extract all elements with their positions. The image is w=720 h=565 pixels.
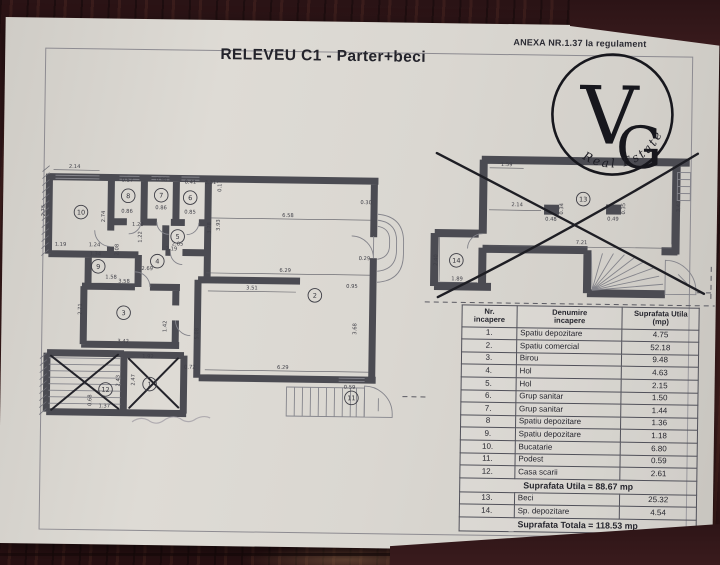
dimension-label: 6.58	[282, 213, 294, 219]
table-cell: 25.32	[620, 494, 697, 508]
table-cell: 4.	[461, 364, 516, 377]
room-number: 11	[347, 394, 355, 402]
room-number: 8	[126, 192, 130, 200]
dimension-label: 2.14	[511, 202, 523, 208]
dimension-label: 3.68	[352, 323, 358, 335]
table-cell: 2.	[462, 339, 517, 352]
rooms-table-body: 1.Spatiu depozitare4.752.Spatiu comercia…	[459, 327, 699, 535]
room-number: 6	[188, 194, 192, 202]
table-cell: 4.54	[620, 507, 697, 521]
dimension-label: 1.24	[89, 242, 101, 248]
dimension-label: 0.72	[184, 365, 196, 371]
dimension-label: 0.29	[359, 256, 371, 262]
table-cell: 12.	[460, 465, 515, 478]
dimension-label: 2.47	[131, 374, 137, 386]
table-header-cell: Suprafata Utila(mp)	[622, 307, 699, 330]
dimension-label: 0.49	[607, 216, 619, 222]
table-cell: 1.	[462, 327, 517, 340]
dimension-label: 2.75	[41, 205, 47, 217]
dimension-label: 0.57	[122, 178, 134, 184]
room-number: 2	[313, 292, 317, 300]
basement-stairs	[591, 253, 664, 291]
dimension-label: 0.86	[121, 209, 133, 215]
table-cell: 10.	[460, 440, 515, 453]
dimension-label: 1.19	[55, 242, 67, 248]
dimension-label: 3.58	[118, 279, 130, 285]
walls-parter	[46, 174, 378, 419]
table-cell: 13.	[459, 492, 514, 505]
dimension-label: 1.92	[142, 354, 154, 360]
wood-background: { "document": { "title": "RELEVEU C1 - P…	[0, 0, 720, 565]
room-number: 3	[121, 309, 125, 317]
handwritten-scribble	[132, 416, 210, 424]
table-cell: 52.18	[622, 341, 699, 355]
dimension-label: 0.68	[87, 394, 93, 406]
dimension-label: 1.42	[162, 320, 168, 332]
dimension-label: 2.71	[78, 303, 84, 315]
room-number: 7	[159, 192, 163, 200]
table-cell: 4.75	[622, 329, 699, 343]
table-cell: 8	[461, 415, 516, 428]
room-number: 14	[452, 257, 460, 265]
table-header-cell: Denumireincapere	[517, 306, 623, 329]
dimension-label: 2.14	[69, 164, 81, 170]
table-cell: 9.48	[622, 354, 699, 368]
basement-landing	[665, 260, 696, 294]
dimension-label: 2.40	[433, 254, 439, 266]
x-mark-casa-scarii	[50, 354, 119, 411]
dimension-label: 1.58	[105, 274, 117, 280]
vg-real-estate-logo: V G Real Estate	[527, 50, 701, 210]
dimension-label: 5.08	[194, 328, 200, 340]
dimension-label: 0.95	[346, 284, 358, 290]
table-cell: 11.	[460, 453, 515, 466]
dimension-label: 0.59	[344, 385, 356, 391]
room-number: 5	[176, 233, 180, 241]
dimension-label: 0.48	[545, 217, 557, 223]
dimension-label: 0.86	[155, 205, 167, 211]
dimension-label: 1.59	[501, 162, 513, 168]
dimension-label: 0.17	[217, 180, 223, 192]
table-header-cell: Nr.incapere	[462, 305, 517, 327]
table-cell: 6.80	[621, 442, 698, 456]
dimension-label: 3.42	[117, 339, 129, 345]
dimension-label: 7.21	[576, 240, 588, 246]
dimension-label: 3.51	[246, 285, 258, 291]
dimension-label: 0.85	[184, 210, 196, 216]
dimension-label: 3.78	[207, 222, 213, 234]
dimension-label: 1.20	[132, 222, 144, 228]
dimension-label: 1.22	[138, 231, 144, 243]
table-cell: 2.61	[620, 467, 697, 481]
table-cell: 1.36	[621, 417, 698, 431]
table-cell: 2.15	[621, 379, 698, 393]
dimension-label: 2.43	[116, 375, 122, 387]
table-cell: 4.63	[622, 367, 699, 381]
wood-plank-groove	[0, 553, 400, 556]
scanned-document-page: RELEVEU C1 - Parter+beci ANEXA NR.1.37 l…	[0, 17, 720, 553]
table-cell: 9.	[460, 427, 515, 440]
dimension-label: 6.29	[277, 365, 289, 371]
rooms-table: Nr.incapereDenumireincapereSuprafata Uti…	[459, 304, 700, 534]
entrance-landing	[364, 386, 392, 417]
dimension-label: 0.41	[185, 180, 197, 186]
room-number: 10	[77, 208, 85, 216]
boundary-dashes	[697, 267, 713, 301]
dimension-label: 1.34	[90, 251, 102, 257]
dimension-label: 2.08	[114, 244, 120, 256]
table-cell: 6.	[461, 390, 516, 403]
table-cell: 5.	[461, 377, 516, 390]
table-cell: 1.50	[621, 392, 698, 406]
dimension-label: 1.89	[451, 276, 463, 282]
room-number: 1	[147, 380, 151, 388]
dimension-label: 3.93	[216, 219, 222, 231]
dimension-label: 3.31	[205, 180, 217, 186]
table-cell: 0.59	[620, 455, 697, 469]
dimension-label: 0.30	[360, 200, 372, 206]
table-cell: 7.	[461, 402, 516, 415]
dimension-label: 1.37	[98, 403, 110, 409]
room-number: 4	[155, 258, 159, 266]
entrance-curves	[377, 214, 404, 282]
dimension-label: 2.19	[166, 246, 178, 252]
room-number: 12	[101, 386, 109, 394]
dimension-label: 2.74	[101, 210, 107, 222]
table-cell: 1.18	[621, 430, 698, 444]
table-cell: 1.44	[621, 404, 698, 418]
dimension-label: 0.98	[156, 177, 168, 183]
dimension-label: 2.69	[141, 266, 153, 272]
table-cell: 3.	[461, 352, 516, 365]
room-number: 9	[96, 263, 100, 271]
table-cell: 14.	[459, 504, 514, 517]
dimension-label: 6.29	[279, 268, 291, 274]
floor-plan-parter: 1087654931212112.142.752.741.190.570.980…	[38, 154, 414, 439]
